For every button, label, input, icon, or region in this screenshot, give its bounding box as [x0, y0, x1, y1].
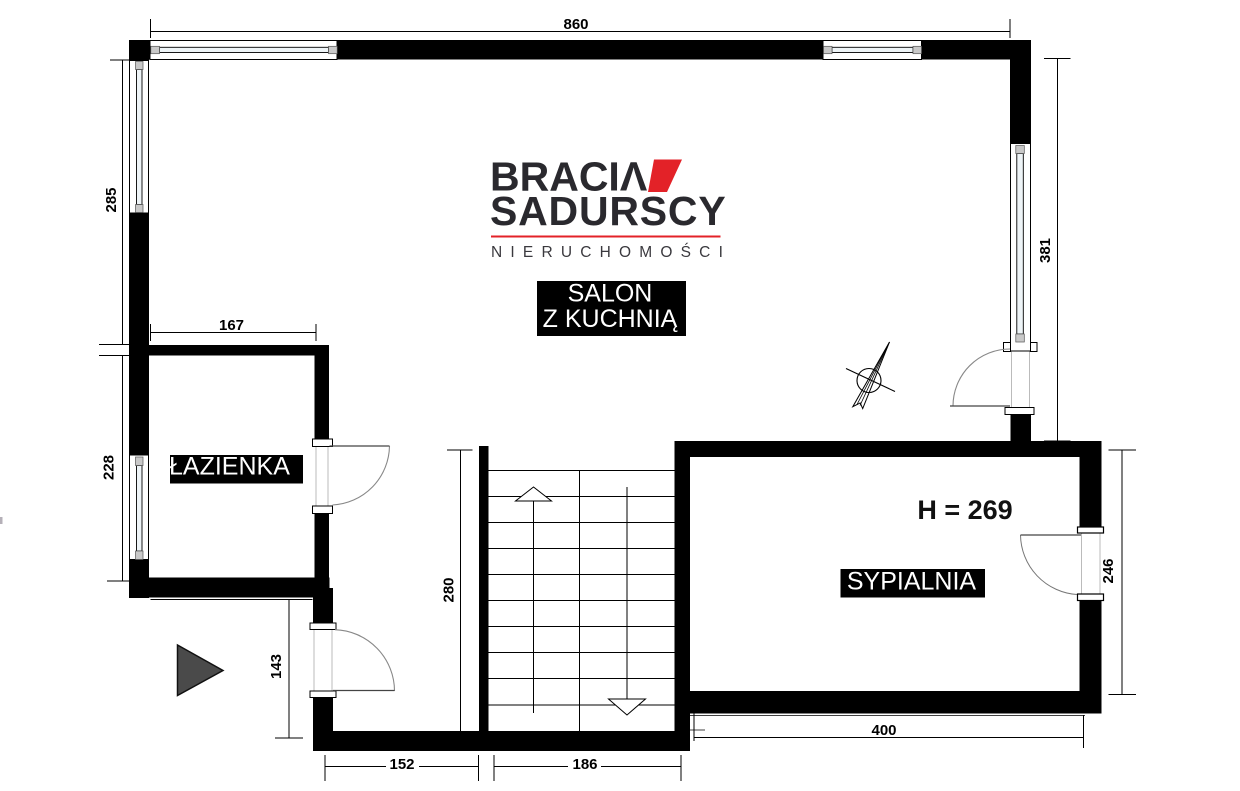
- svg-text:Z KUCHNIĄ: Z KUCHNIĄ: [543, 305, 678, 333]
- svg-text:860: 860: [563, 16, 588, 33]
- svg-text:143: 143: [268, 654, 285, 679]
- svg-text:285: 285: [103, 187, 120, 212]
- svg-text:167: 167: [219, 317, 244, 334]
- svg-text:ŁAZIENKA: ŁAZIENKA: [169, 453, 290, 481]
- svg-text:186: 186: [572, 756, 597, 773]
- svg-text:228: 228: [101, 455, 118, 480]
- svg-text:NIERUCHOMOŚCI: NIERUCHOMOŚCI: [491, 243, 731, 261]
- svg-text:400: 400: [871, 722, 896, 739]
- svg-text:381: 381: [1037, 238, 1054, 263]
- svg-text:152: 152: [389, 756, 414, 773]
- svg-text:H = 269: H = 269: [917, 495, 1012, 525]
- svg-text:SADURSCY: SADURSCY: [490, 188, 726, 234]
- svg-text:2: 2: [680, 714, 692, 720]
- svg-text:SALON: SALON: [568, 280, 653, 308]
- svg-text:280: 280: [441, 577, 458, 602]
- svg-text:246: 246: [1100, 558, 1117, 583]
- svg-text:SYPIALNIA: SYPIALNIA: [847, 568, 977, 596]
